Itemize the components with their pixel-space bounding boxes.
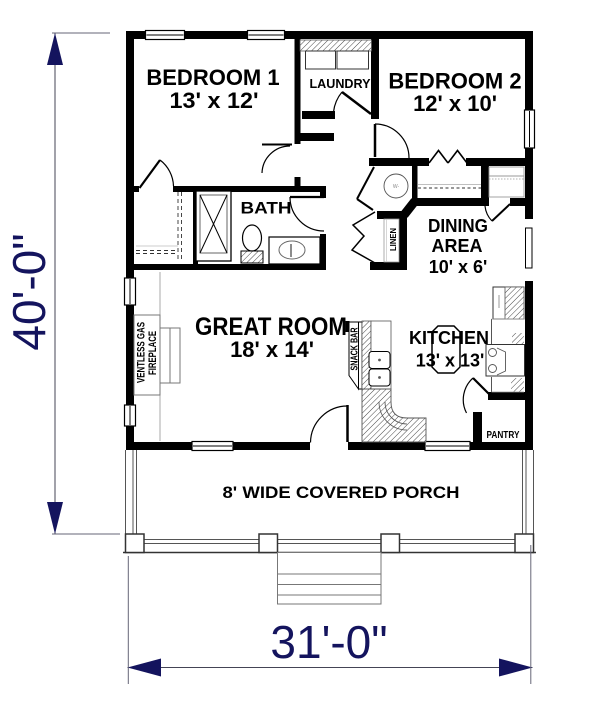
svg-text:BATH: BATH [241, 199, 292, 218]
svg-text:10' x 6': 10' x 6' [429, 257, 488, 277]
svg-text:LINEN: LINEN [388, 228, 398, 251]
svg-text:PANTRY: PANTRY [487, 430, 520, 441]
svg-text:18' x 14': 18' x 14' [230, 337, 314, 362]
svg-text:13' x 13': 13' x 13' [416, 351, 485, 371]
svg-text:13' x 12': 13' x 12' [170, 88, 259, 113]
svg-text:FIREPLACE: FIREPLACE [147, 331, 159, 375]
svg-text:KITCHEN: KITCHEN [409, 328, 489, 348]
svg-text:SNACK BAR: SNACK BAR [349, 327, 361, 370]
svg-text:LAUNDRY: LAUNDRY [310, 76, 371, 91]
svg-text:BEDROOM 2: BEDROOM 2 [388, 69, 521, 94]
svg-text:8' WIDE COVERED PORCH: 8' WIDE COVERED PORCH [223, 483, 460, 502]
svg-text:40'-0": 40'-0" [3, 233, 55, 350]
svg-text:W-: W- [393, 184, 400, 190]
svg-text:VENTLESS GAS: VENTLESS GAS [136, 322, 148, 383]
svg-text:AREA: AREA [431, 236, 482, 256]
svg-text:12' x 10': 12' x 10' [413, 91, 497, 116]
svg-text:BEDROOM 1: BEDROOM 1 [146, 65, 279, 90]
svg-text:DINING: DINING [428, 216, 488, 236]
svg-text:31'-0": 31'-0" [270, 616, 387, 668]
